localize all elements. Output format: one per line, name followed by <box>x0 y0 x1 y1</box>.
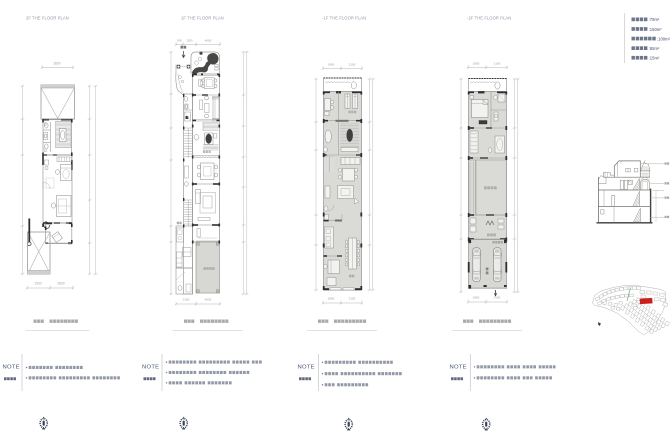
svg-text:4600: 4600 <box>205 39 212 43</box>
svg-text:1F THE FLOOR PLAN: 1F THE FLOOR PLAN <box>181 16 224 21</box>
svg-text:2F THE FLOOR PLAN: 2F THE FLOOR PLAN <box>26 16 69 21</box>
svg-text:1500: 1500 <box>186 39 193 43</box>
svg-text:1500: 1500 <box>34 282 41 286</box>
svg-text:2100: 2100 <box>494 62 501 66</box>
svg-text:900: 900 <box>177 39 182 43</box>
svg-text::79m²: :79m² <box>649 17 660 22</box>
svg-text:2100: 2100 <box>494 296 501 300</box>
svg-text:-2F THE FLOOR PLAN: -2F THE FLOOR PLAN <box>467 16 511 21</box>
svg-text:-1F THE FLOOR PLAN: -1F THE FLOOR PLAN <box>322 16 366 21</box>
svg-text:1800: 1800 <box>473 296 480 300</box>
svg-text::15m²: :15m² <box>649 56 660 61</box>
svg-text:2100: 2100 <box>349 63 356 67</box>
svg-text:2100: 2100 <box>183 298 190 302</box>
svg-text:NOTE: NOTE <box>450 365 467 371</box>
svg-text:NOTE: NOTE <box>298 365 315 371</box>
svg-text:NOTE: NOTE <box>142 365 159 371</box>
svg-text:4600: 4600 <box>205 298 212 302</box>
svg-text:1800: 1800 <box>328 297 335 301</box>
svg-text::150m²: :150m² <box>649 27 663 32</box>
svg-text:1800: 1800 <box>328 63 335 67</box>
svg-text:NOTE: NOTE <box>3 365 20 371</box>
svg-text:3600: 3600 <box>57 282 64 286</box>
svg-text::100m²: :100m² <box>657 36 670 41</box>
svg-text:2100: 2100 <box>349 297 356 301</box>
svg-text:1800: 1800 <box>473 62 480 66</box>
svg-text::65m²: :65m² <box>649 46 660 51</box>
svg-text:3600: 3600 <box>53 62 60 66</box>
